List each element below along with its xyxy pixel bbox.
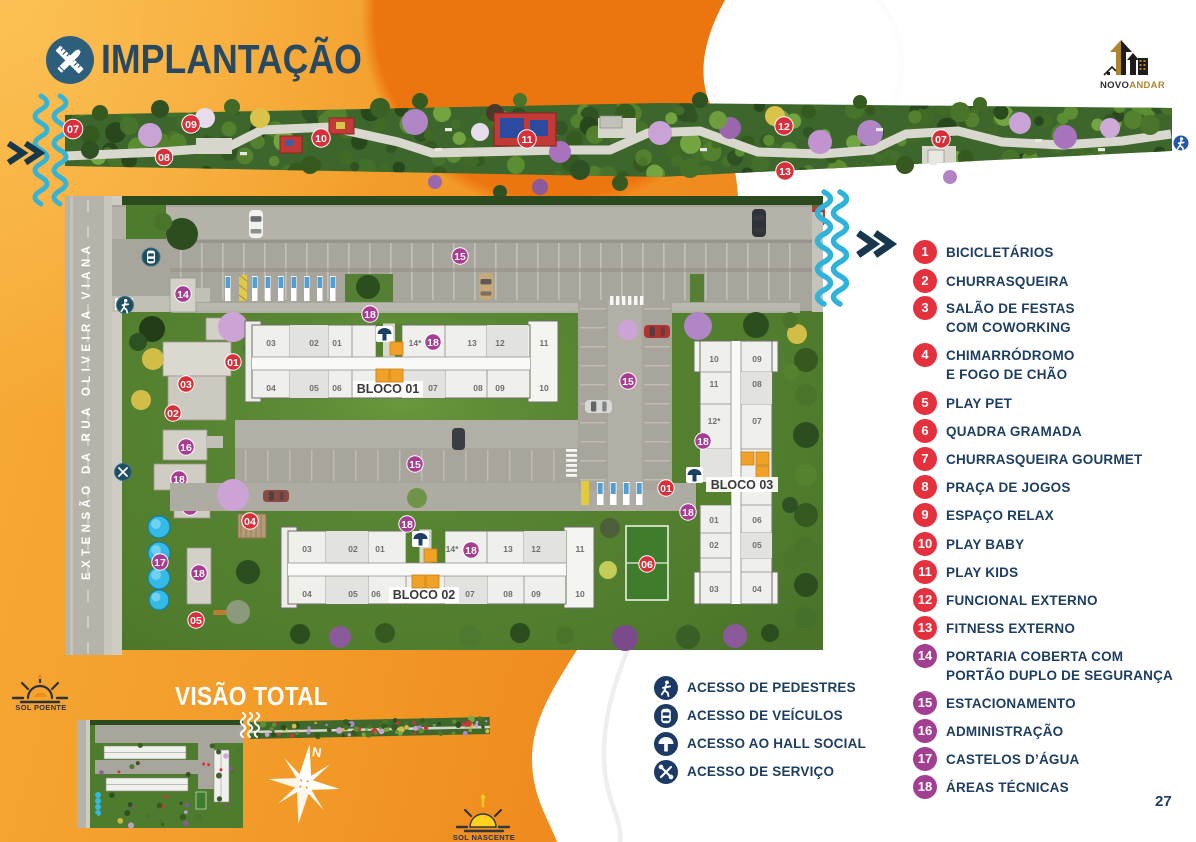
svg-text:18: 18 xyxy=(682,507,694,519)
svg-text:18: 18 xyxy=(465,545,477,557)
svg-text:03: 03 xyxy=(266,338,276,348)
svg-text:12: 12 xyxy=(778,121,790,133)
svg-text:18: 18 xyxy=(364,309,376,321)
svg-text:03: 03 xyxy=(709,584,719,594)
svg-text:01: 01 xyxy=(709,515,719,525)
svg-text:07: 07 xyxy=(752,416,762,426)
svg-text:05: 05 xyxy=(309,383,319,393)
svg-text:02: 02 xyxy=(348,544,358,554)
svg-text:11: 11 xyxy=(540,338,549,348)
svg-text:12*: 12* xyxy=(708,416,721,426)
svg-text:10: 10 xyxy=(539,383,549,393)
svg-text:15: 15 xyxy=(622,376,634,388)
svg-text:05: 05 xyxy=(752,540,762,550)
svg-text:06: 06 xyxy=(752,515,762,525)
svg-text:BLOCO 01: BLOCO 01 xyxy=(357,382,420,396)
svg-text:18: 18 xyxy=(401,519,413,531)
svg-text:13: 13 xyxy=(779,166,791,178)
svg-text:09: 09 xyxy=(531,589,541,599)
svg-text:04: 04 xyxy=(266,383,276,393)
svg-text:10: 10 xyxy=(575,589,585,599)
svg-text:01: 01 xyxy=(660,483,672,495)
svg-text:05: 05 xyxy=(190,615,202,627)
svg-text:09: 09 xyxy=(752,354,762,364)
svg-text:01: 01 xyxy=(375,544,385,554)
svg-text:02: 02 xyxy=(309,338,319,348)
svg-text:07: 07 xyxy=(428,383,438,393)
svg-text:14*: 14* xyxy=(409,338,422,348)
svg-text:07: 07 xyxy=(67,124,79,136)
svg-text:04: 04 xyxy=(752,584,762,594)
svg-text:03: 03 xyxy=(302,544,312,554)
svg-text:06: 06 xyxy=(641,559,653,571)
svg-text:13: 13 xyxy=(503,544,513,554)
svg-text:13: 13 xyxy=(467,338,477,348)
svg-text:03: 03 xyxy=(180,379,192,391)
svg-text:01: 01 xyxy=(332,338,342,348)
svg-text:10: 10 xyxy=(709,354,719,364)
svg-text:05: 05 xyxy=(348,589,358,599)
svg-text:12: 12 xyxy=(495,338,505,348)
svg-text:08: 08 xyxy=(752,379,762,389)
svg-text:11: 11 xyxy=(710,379,719,389)
svg-text:10: 10 xyxy=(315,133,327,145)
svg-text:09: 09 xyxy=(185,119,197,131)
svg-text:04: 04 xyxy=(244,516,256,528)
svg-text:01: 01 xyxy=(227,357,239,369)
svg-text:06: 06 xyxy=(332,383,342,393)
svg-text:16: 16 xyxy=(180,442,192,454)
svg-text:04: 04 xyxy=(302,589,312,599)
svg-text:02: 02 xyxy=(709,540,719,550)
svg-text:18: 18 xyxy=(697,436,709,448)
svg-text:15: 15 xyxy=(454,251,466,263)
svg-text:09: 09 xyxy=(495,383,505,393)
svg-text:BLOCO 03: BLOCO 03 xyxy=(711,478,774,492)
svg-text:11: 11 xyxy=(576,544,585,554)
svg-text:08: 08 xyxy=(158,152,170,164)
svg-text:02: 02 xyxy=(167,408,179,420)
svg-text:06: 06 xyxy=(371,589,381,599)
svg-text:11: 11 xyxy=(521,134,532,146)
svg-text:07: 07 xyxy=(465,589,475,599)
svg-text:BLOCO 02: BLOCO 02 xyxy=(393,588,456,602)
svg-text:07: 07 xyxy=(935,134,947,146)
svg-text:15: 15 xyxy=(409,459,421,471)
svg-text:08: 08 xyxy=(473,383,483,393)
svg-text:17: 17 xyxy=(154,557,166,569)
svg-text:14*: 14* xyxy=(446,544,459,554)
svg-text:18: 18 xyxy=(193,568,205,580)
svg-text:18: 18 xyxy=(427,337,439,349)
svg-text:08: 08 xyxy=(503,589,513,599)
svg-text:N: N xyxy=(311,744,322,760)
svg-text:14: 14 xyxy=(177,289,189,301)
svg-text:12: 12 xyxy=(531,544,541,554)
